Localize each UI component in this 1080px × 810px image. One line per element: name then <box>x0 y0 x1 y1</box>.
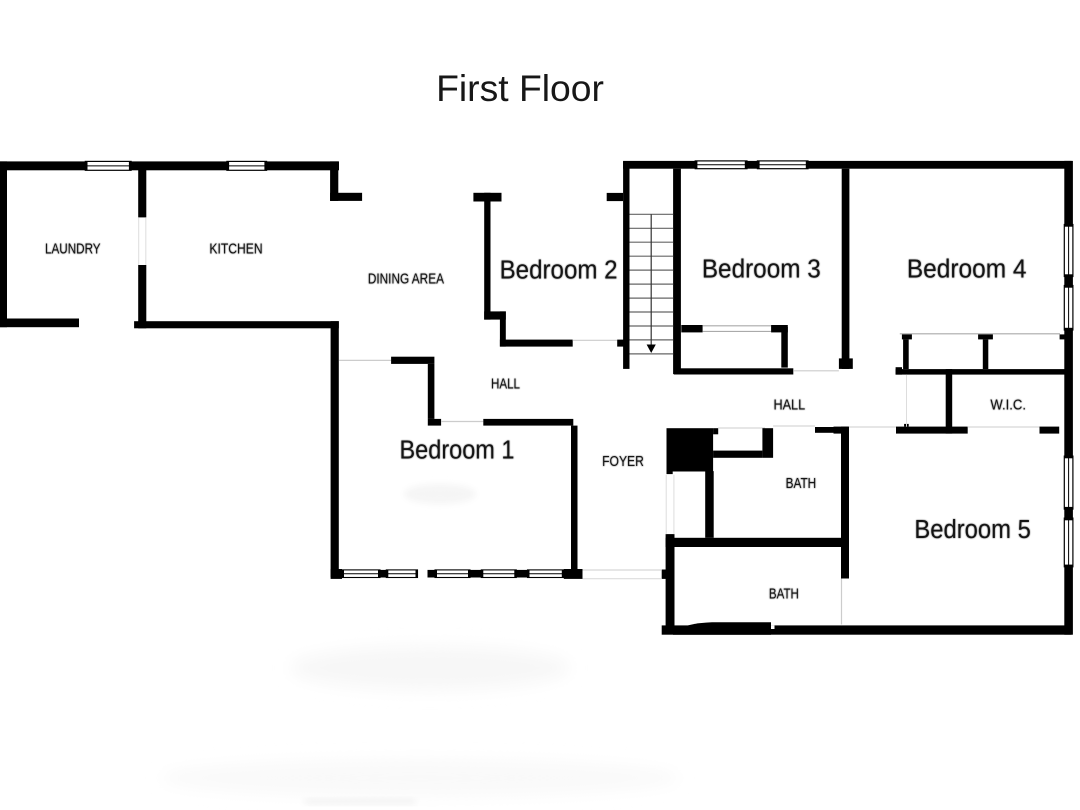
svg-text:BATH: BATH <box>769 587 799 603</box>
svg-text:HALL: HALL <box>773 397 805 413</box>
svg-text:Bedroom 4: Bedroom 4 <box>907 255 1027 283</box>
svg-text:W.I.C.: W.I.C. <box>990 398 1026 414</box>
svg-text:First Floor: First Floor <box>436 67 604 109</box>
svg-text:DINING AREA: DINING AREA <box>368 272 444 288</box>
svg-text:KITCHEN: KITCHEN <box>209 242 262 258</box>
svg-text:Bedroom 2: Bedroom 2 <box>500 257 618 285</box>
svg-text:LAUNDRY: LAUNDRY <box>45 242 101 258</box>
svg-text:BATH: BATH <box>786 476 817 492</box>
svg-text:Bedroom 5: Bedroom 5 <box>914 516 1031 544</box>
svg-text:FOYER: FOYER <box>602 454 644 470</box>
svg-text:Bedroom 3: Bedroom 3 <box>702 255 821 283</box>
svg-text:HALL: HALL <box>491 377 520 393</box>
svg-text:Bedroom 1: Bedroom 1 <box>400 437 515 465</box>
